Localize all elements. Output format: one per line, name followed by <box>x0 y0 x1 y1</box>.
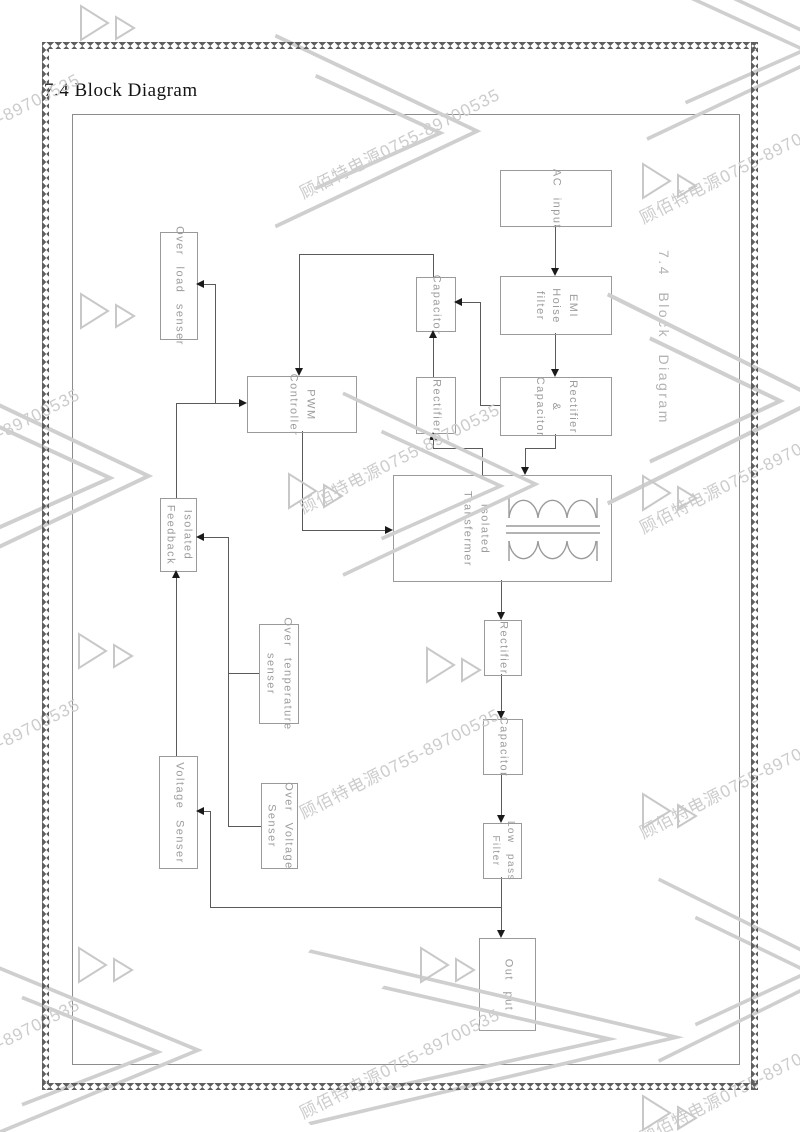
connector-segment <box>210 811 211 907</box>
block-label: PWM Controller <box>286 373 319 436</box>
connector-segment <box>228 673 259 674</box>
triangle-pair-watermark-icon <box>78 2 138 44</box>
block-label: Over tenperature senser <box>263 617 296 730</box>
zigzag-border-bottom <box>42 1083 758 1090</box>
connector-segment <box>176 403 177 498</box>
arrowhead-down <box>497 930 505 938</box>
connector-segment <box>228 537 229 826</box>
block-label: Capacitor <box>495 717 512 778</box>
block-over-load-senser: Over load senser <box>160 232 198 340</box>
block-over-voltage-senser: Over Voltage Senser <box>261 783 298 869</box>
block-label: Low pass Filter <box>488 821 518 881</box>
connector-segment <box>501 580 502 612</box>
connector-segment <box>501 674 502 711</box>
connector-segment <box>302 431 303 530</box>
connector-segment <box>480 405 500 406</box>
arrowhead-up <box>429 432 437 440</box>
connector-segment <box>501 877 502 930</box>
arrowhead-up <box>172 570 180 578</box>
zigzag-border-left <box>42 42 49 1090</box>
block-label: Isolated Feedback <box>162 505 195 565</box>
arrowhead-down <box>497 815 505 823</box>
connector-segment <box>433 448 482 449</box>
block-rectifier-aux: Rectifier <box>416 377 456 434</box>
block-emi-noise-filter: EMI Hoise filter <box>500 276 612 335</box>
block-label: EMI Hoise filter <box>531 288 581 324</box>
connector-segment <box>480 302 481 405</box>
block-isolated-transformer: Isolated Transfermer <box>393 475 612 582</box>
block-rectifier-capacitor: Rectifier & Capacitor <box>500 377 612 436</box>
arrowhead-left <box>196 533 204 541</box>
page-title: 7.4 Block Diagram <box>44 80 198 102</box>
block-label: Voltage Senser <box>170 762 187 864</box>
arrowhead-down <box>521 467 529 475</box>
connector-segment <box>215 284 216 403</box>
block-label: Capacitor <box>428 274 445 335</box>
document-page: 7.4 Block Diagram 7.4 Block Diagram AC i… <box>0 0 800 1132</box>
connector-segment <box>204 284 215 285</box>
connector-segment <box>555 225 556 268</box>
block-over-temperature-senser: Over tenperature senser <box>259 624 299 724</box>
connector-segment <box>210 907 501 908</box>
connector-segment <box>555 333 556 369</box>
block-label: Out put <box>499 958 516 1011</box>
connector-segment <box>462 302 480 303</box>
block-output: Out put <box>479 938 536 1031</box>
connector-segment <box>525 448 526 467</box>
arrowhead-down <box>497 612 505 620</box>
block-ac-input: AC input <box>500 170 612 227</box>
connector-segment <box>501 773 502 815</box>
rotated-section-title: 7.4 Block Diagram <box>656 250 672 425</box>
connector-segment <box>228 826 261 827</box>
connector-segment <box>433 338 434 377</box>
block-voltage-senser: Voltage Senser <box>159 756 198 869</box>
connector-segment <box>525 448 556 449</box>
block-label: Rectifier & Capacitor <box>531 376 581 437</box>
block-capacitor-aux: Capacitor <box>416 277 456 332</box>
block-capacitor-out: Capacitor <box>483 719 523 775</box>
arrowhead-up <box>429 330 437 338</box>
connector-segment <box>482 448 483 475</box>
arrowhead-down <box>497 711 505 719</box>
block-label: Isolated Transfermer <box>460 491 493 567</box>
connector-segment <box>299 254 300 368</box>
block-label: Rectifier <box>495 621 512 675</box>
block-label: AC input <box>548 168 565 228</box>
zigzag-border-top <box>42 42 758 49</box>
block-label: Rectifier <box>428 379 445 433</box>
connector-segment <box>433 440 434 448</box>
zigzag-border-right <box>751 42 758 1090</box>
block-label: Over Voltage Senser <box>263 782 296 870</box>
connector-segment <box>299 254 433 255</box>
transformer-coils-icon <box>503 482 603 574</box>
arrowhead-down <box>551 268 559 276</box>
connector-segment <box>302 530 385 531</box>
arrowhead-down <box>295 368 303 376</box>
connector-segment <box>433 254 434 277</box>
arrowhead-right <box>239 399 247 407</box>
arrowhead-left <box>196 807 204 815</box>
triangle-pair-watermark-icon <box>640 1092 700 1132</box>
arrowhead-left <box>454 298 462 306</box>
block-isolated-feedback: Isolated Feedback <box>160 498 197 572</box>
block-rectifier-out: Rectifier <box>484 620 522 676</box>
block-pwm-controller: PWM Controller <box>247 376 357 433</box>
arrowhead-down <box>551 369 559 377</box>
connector-segment <box>176 403 239 404</box>
block-low-pass-filter: Low pass Filter <box>483 823 522 879</box>
connector-segment <box>176 578 177 756</box>
arrowhead-right <box>385 526 393 534</box>
arrowhead-left <box>196 280 204 288</box>
block-label: Over load senser <box>171 226 188 346</box>
connector-segment <box>204 537 228 538</box>
